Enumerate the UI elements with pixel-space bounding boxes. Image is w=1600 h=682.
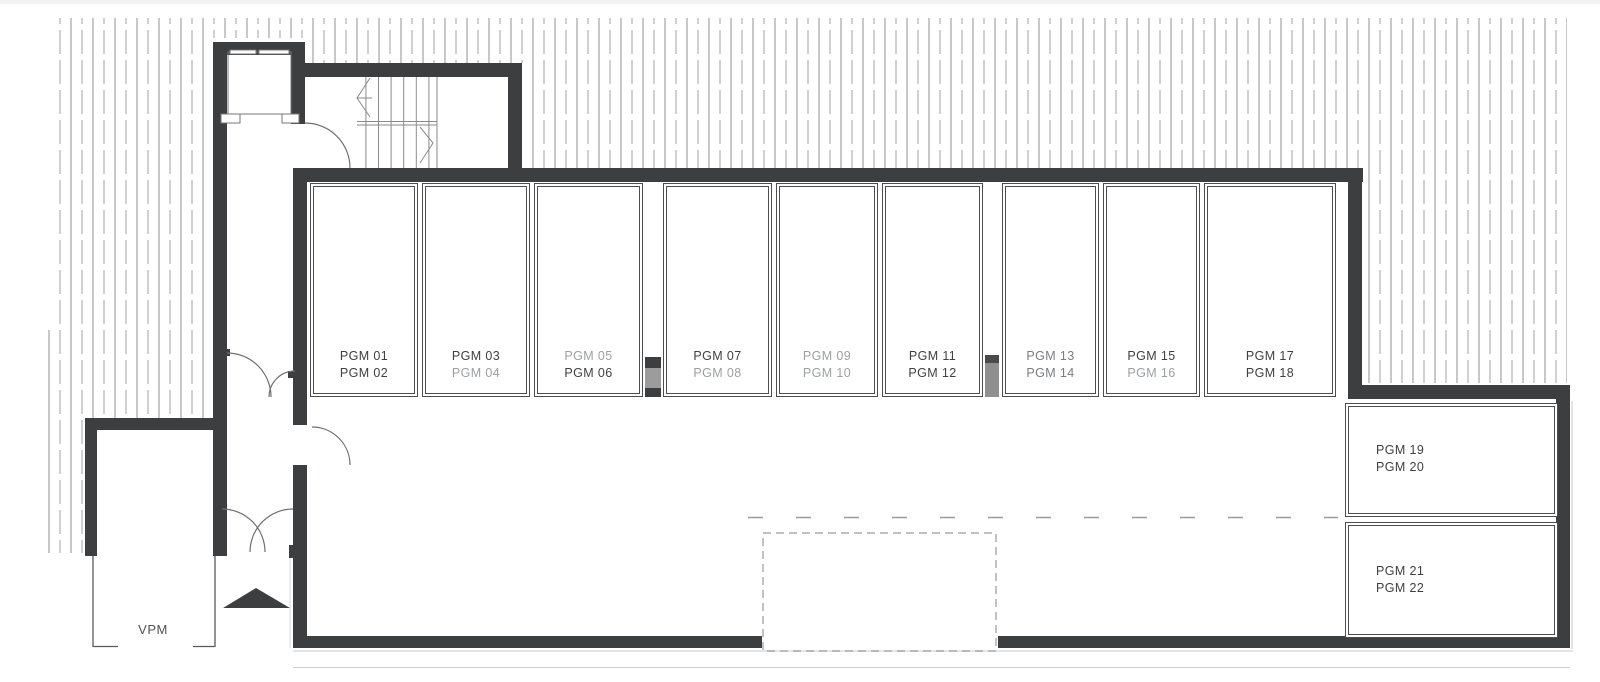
stall-label: PGM 17 PGM 18 [1205,348,1335,382]
parking-stall-pgm-13-14: PGM 13 PGM 14 [1002,183,1099,397]
stall-label: PGM 03 PGM 04 [423,348,529,382]
stall-label: PGM 07 PGM 08 [664,348,771,382]
parking-stall-pgm-11-12: PGM 11 PGM 12 [882,183,983,397]
parking-stall-pgm-03-04: PGM 03 PGM 04 [422,183,530,397]
stall-label: PGM 15 PGM 16 [1104,348,1199,382]
parking-stall-pgm-15-16: PGM 15 PGM 16 [1103,183,1200,397]
parking-floor-plan: PGM 01 PGM 02 PGM 03 PGM 04 PGM 05 PGM 0… [0,0,1600,682]
staircase [357,77,437,168]
stall-label: PGM 21 PGM 22 [1346,563,1557,597]
entrance-arrow-icon [223,588,290,608]
parking-stall-pgm-19-20: PGM 19 PGM 20 [1345,403,1558,517]
stall-label: PGM 09 PGM 10 [777,348,877,382]
stall-label: PGM 13 PGM 14 [1003,348,1098,382]
parking-stall-pgm-09-10: PGM 09 PGM 10 [776,183,878,397]
vestibule-label: VPM [118,622,188,637]
stall-label: PGM 05 PGM 06 [535,348,642,382]
stair-treads [357,77,437,168]
stall-label: PGM 01 PGM 02 [311,348,417,382]
stall-label: PGM 11 PGM 12 [883,348,982,382]
parking-stall-pgm-01-02: PGM 01 PGM 02 [310,183,418,397]
parking-stall-pgm-21-22: PGM 21 PGM 22 [1345,522,1558,638]
parking-stall-pgm-05-06: PGM 05 PGM 06 [534,183,643,397]
stall-label: PGM 19 PGM 20 [1346,442,1557,476]
parking-stall-pgm-07-08: PGM 07 PGM 08 [663,183,772,397]
parking-stall-pgm-17-18: PGM 17 PGM 18 [1204,183,1336,397]
